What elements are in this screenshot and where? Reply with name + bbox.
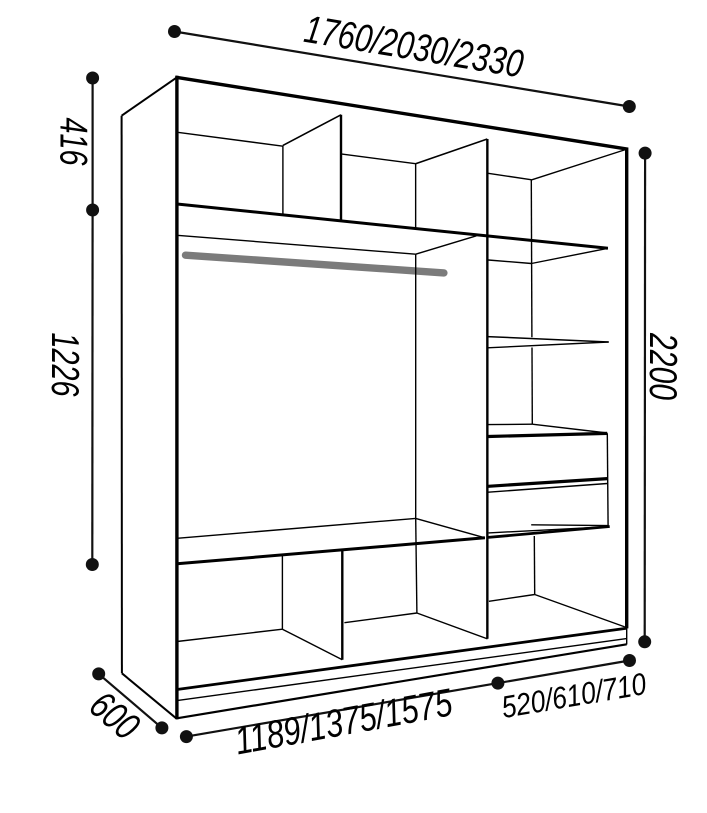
- svg-text:416: 416: [52, 118, 95, 166]
- svg-text:1226: 1226: [43, 333, 86, 397]
- svg-text:2200: 2200: [641, 332, 684, 400]
